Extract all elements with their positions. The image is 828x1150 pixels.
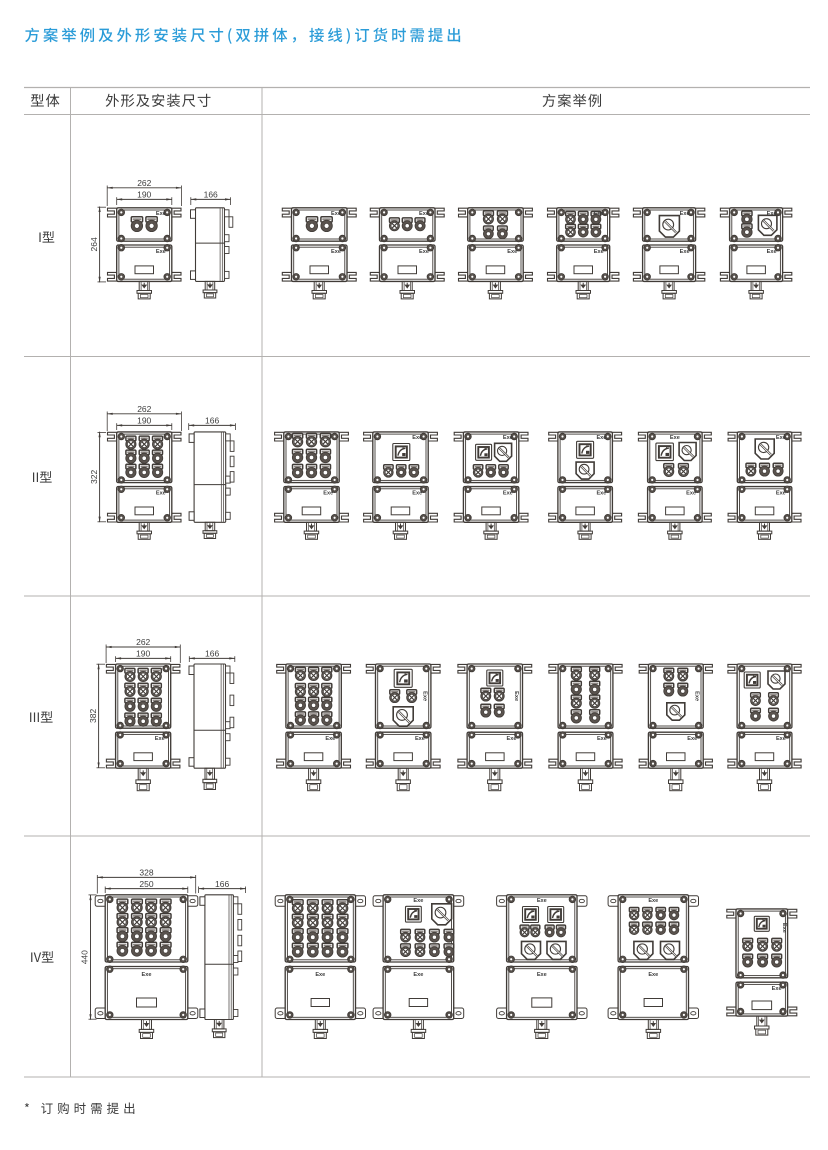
svg-text:Exe: Exe — [776, 435, 786, 441]
svg-text:Exe: Exe — [413, 898, 423, 904]
svg-text:Exe: Exe — [325, 736, 335, 742]
svg-text:Exe: Exe — [419, 211, 429, 217]
svg-text:166: 166 — [215, 879, 229, 889]
svg-text:264: 264 — [89, 237, 99, 251]
svg-text:Exe: Exe — [537, 898, 547, 904]
svg-text:Exe: Exe — [412, 491, 422, 497]
svg-text:Exe: Exe — [156, 491, 166, 497]
svg-text:Exe: Exe — [503, 435, 513, 441]
svg-text:166: 166 — [205, 416, 219, 426]
svg-text:Exe: Exe — [686, 491, 696, 497]
svg-text:Exe: Exe — [772, 986, 782, 992]
svg-text:Exe: Exe — [419, 249, 429, 255]
svg-text:Exe: Exe — [331, 211, 341, 217]
svg-text:Exe: Exe — [694, 691, 700, 701]
svg-text:Exe: Exe — [415, 736, 425, 742]
svg-text:Exe: Exe — [323, 491, 333, 497]
svg-text:Exe: Exe — [767, 249, 777, 255]
svg-text:262: 262 — [136, 637, 150, 647]
svg-text:190: 190 — [137, 416, 151, 426]
svg-text:382: 382 — [88, 709, 98, 723]
svg-text:Exe: Exe — [648, 898, 658, 904]
svg-text:Exe: Exe — [648, 972, 658, 978]
svg-text:166: 166 — [205, 649, 219, 659]
svg-text:Exe: Exe — [315, 972, 325, 978]
svg-text:Exe: Exe — [537, 972, 547, 978]
svg-text:Exe: Exe — [594, 211, 604, 217]
svg-text:Exe: Exe — [156, 249, 166, 255]
svg-text:Exe: Exe — [155, 736, 165, 742]
svg-text:Exe: Exe — [142, 972, 152, 978]
svg-text:322: 322 — [89, 470, 99, 484]
svg-text:190: 190 — [136, 649, 150, 659]
svg-text:Exe: Exe — [507, 249, 517, 255]
svg-text:Exe: Exe — [596, 435, 606, 441]
svg-text:Exe: Exe — [503, 491, 513, 497]
svg-text:Exe: Exe — [680, 249, 690, 255]
svg-text:Exe: Exe — [507, 736, 517, 742]
svg-text:Exe: Exe — [596, 491, 606, 497]
svg-text:Exe: Exe — [413, 972, 423, 978]
svg-text:Exe: Exe — [597, 736, 607, 742]
svg-text:Exe: Exe — [680, 211, 690, 217]
svg-text:250: 250 — [139, 879, 153, 889]
svg-text:262: 262 — [137, 178, 151, 188]
svg-text:Exe: Exe — [670, 435, 680, 441]
svg-text:262: 262 — [137, 404, 151, 414]
svg-text:Exe: Exe — [331, 249, 341, 255]
svg-text:Exe: Exe — [776, 491, 786, 497]
svg-text:190: 190 — [137, 190, 151, 200]
svg-text:Exe: Exe — [156, 211, 166, 217]
svg-text:Exe: Exe — [767, 211, 777, 217]
svg-text:Exe: Exe — [687, 736, 697, 742]
svg-text:166: 166 — [204, 190, 218, 200]
svg-text:Exe: Exe — [421, 691, 427, 701]
svg-text:Exe: Exe — [781, 923, 787, 933]
svg-text:Exe: Exe — [412, 435, 422, 441]
svg-text:Exe: Exe — [594, 249, 604, 255]
svg-text:440: 440 — [80, 950, 90, 964]
svg-text:Exe: Exe — [513, 691, 519, 701]
svg-text:328: 328 — [139, 868, 153, 878]
svg-text:Exe: Exe — [776, 736, 786, 742]
